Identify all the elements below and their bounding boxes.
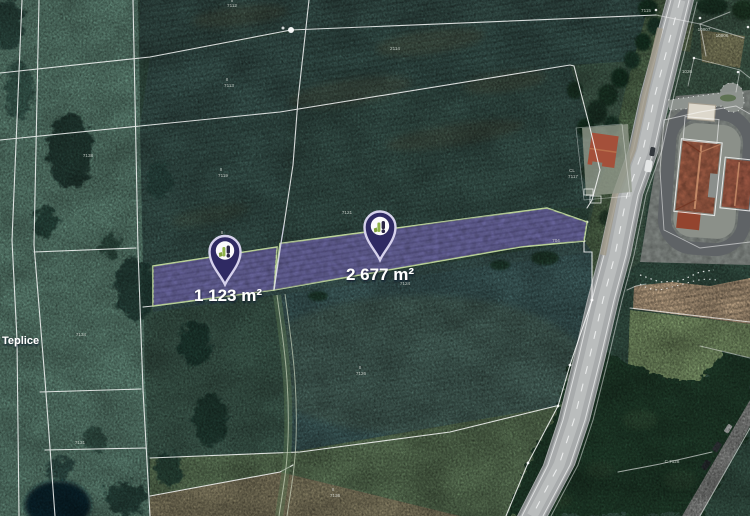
svg-text:10906: 10906 [716,33,729,38]
svg-text:2 677 m²: 2 677 m² [346,265,414,284]
svg-text:7115: 7115 [641,8,651,13]
svg-text:CL: CL [569,168,575,173]
svg-text:1026: 1026 [682,69,693,74]
svg-text:II: II [226,77,229,82]
svg-text:10907: 10907 [698,27,711,32]
svg-text:7136: 7136 [330,493,341,498]
svg-text:1 123 m²: 1 123 m² [194,286,262,305]
svg-text:II: II [220,167,223,172]
svg-text:7121: 7121 [342,210,353,215]
svg-text:C 7128: C 7128 [665,459,680,464]
svg-text:7112: 7112 [227,3,237,8]
svg-text:2114: 2114 [390,46,400,51]
svg-text:II: II [332,487,335,492]
svg-text:II: II [359,365,362,370]
svg-text:7131: 7131 [75,440,86,445]
svg-text:7134: 7134 [76,332,87,337]
svg-text:7113: 7113 [224,83,234,88]
svg-text:II: II [231,0,234,3]
svg-text:7119: 7119 [218,173,228,178]
svg-text:7126: 7126 [356,371,367,376]
svg-text:704: 704 [552,238,560,243]
svg-text:II: II [221,230,224,235]
svg-text:7138: 7138 [83,153,94,158]
svg-text:Teplice: Teplice [2,335,39,347]
svg-text:7117: 7117 [568,174,578,179]
